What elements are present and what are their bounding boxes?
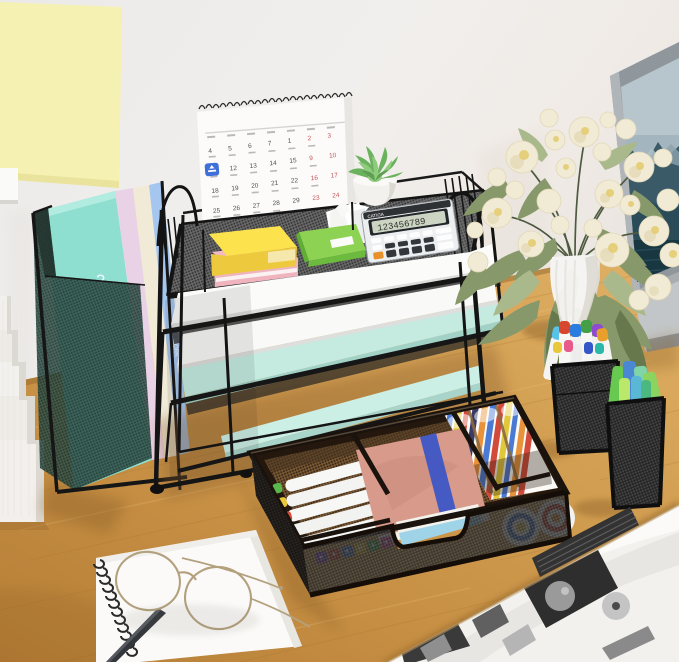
svg-text:19: 19: [231, 185, 239, 193]
svg-text:26: 26: [233, 205, 241, 213]
svg-text:21: 21: [271, 180, 279, 188]
svg-text:18: 18: [211, 187, 219, 195]
svg-text:24: 24: [332, 192, 340, 200]
svg-text:28: 28: [272, 200, 280, 208]
svg-text:14: 14: [269, 160, 277, 168]
svg-text:10: 10: [329, 152, 337, 160]
svg-text:13: 13: [249, 162, 257, 170]
svg-text:17: 17: [330, 172, 338, 180]
svg-text:16: 16: [311, 175, 319, 183]
svg-text:22: 22: [291, 177, 299, 185]
svg-text:20: 20: [251, 182, 259, 190]
svg-text:12: 12: [230, 165, 238, 173]
svg-text:25: 25: [213, 207, 221, 215]
svg-text:27: 27: [253, 202, 261, 210]
svg-text:29: 29: [292, 197, 300, 205]
svg-text:15: 15: [289, 157, 297, 165]
svg-text:23: 23: [312, 195, 320, 203]
